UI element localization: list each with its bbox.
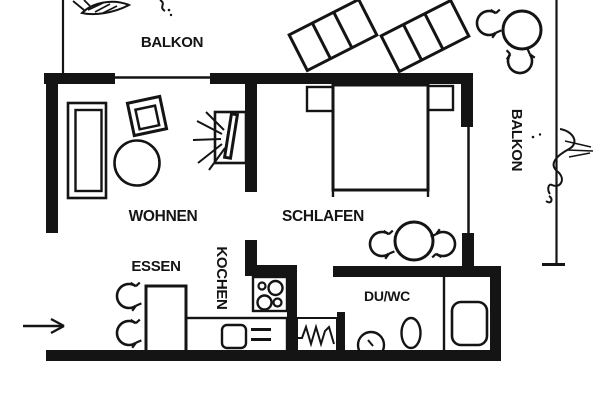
burner-small-1: [259, 283, 266, 290]
wall-kitchen-east: [287, 265, 297, 361]
sink: [222, 325, 246, 348]
sofa: [68, 103, 106, 198]
radiator-zigzag: [297, 318, 337, 352]
label-duwc: DU/WC: [364, 288, 410, 304]
burner-small-2: [274, 299, 282, 307]
plant-sketch-small: [160, 0, 172, 16]
floor-plan-drawing: BALKON WOHNEN SCHLAFEN ESSEN KOCHEN DU/W…: [0, 0, 600, 400]
chair-arrow-essen-top: [117, 283, 141, 311]
balcony-right: [289, 0, 593, 265]
armchair: [127, 96, 166, 135]
label-wohnen: WOHNEN: [129, 208, 198, 225]
stove-hob: [253, 277, 287, 311]
wall-wohnen-schlafen-lower: [245, 240, 257, 267]
wall-wohnen-schlafen-upper: [245, 84, 257, 192]
drainer-lines: [251, 330, 271, 340]
label-schlafen: SCHLAFEN: [282, 208, 364, 225]
nightstand-right: [428, 86, 453, 110]
toilet: [402, 318, 421, 348]
tv-screen: [225, 114, 238, 158]
round-dining-table: [395, 222, 433, 260]
sun-lounger-2: [381, 0, 469, 71]
tv: [193, 112, 246, 170]
entrance-arrow: [23, 319, 64, 333]
wall-right: [490, 268, 501, 361]
label-balkon-top: BALKON: [141, 34, 203, 51]
shower-tray: [452, 302, 487, 345]
plant-sketch-top-left: [73, 0, 129, 14]
floor-plan: BALKON WOHNEN SCHLAFEN ESSEN KOCHEN DU/W…: [0, 0, 600, 400]
wall-duwc-door-jamb: [337, 312, 345, 355]
chair-arrow-table-left: [370, 231, 394, 259]
coffee-table: [115, 141, 160, 186]
bed: [333, 85, 428, 197]
wall-pillar-northeast: [461, 73, 473, 127]
burner-large-1: [269, 281, 283, 295]
chair-arrow-balcony-left: [477, 10, 501, 38]
label-balkon-right: BALKON: [508, 109, 525, 171]
tv-rays: [193, 112, 225, 170]
balcony-table: [503, 11, 541, 49]
wall-left: [46, 73, 58, 233]
label-essen: ESSEN: [131, 258, 180, 275]
chair-arrow-balcony-bottom: [507, 49, 535, 73]
wall-duwc-top: [333, 266, 501, 277]
wall-top-main: [210, 73, 473, 84]
sun-lounger-1: [289, 0, 377, 71]
plant-sketch-right: [532, 129, 593, 202]
dining-table: [146, 286, 186, 352]
label-kochen: KOCHEN: [213, 246, 230, 309]
wall-bottom: [46, 350, 501, 361]
burner-large-2: [258, 296, 272, 310]
chair-arrow-essen-bottom: [117, 320, 141, 348]
nightstand-left: [307, 87, 333, 111]
